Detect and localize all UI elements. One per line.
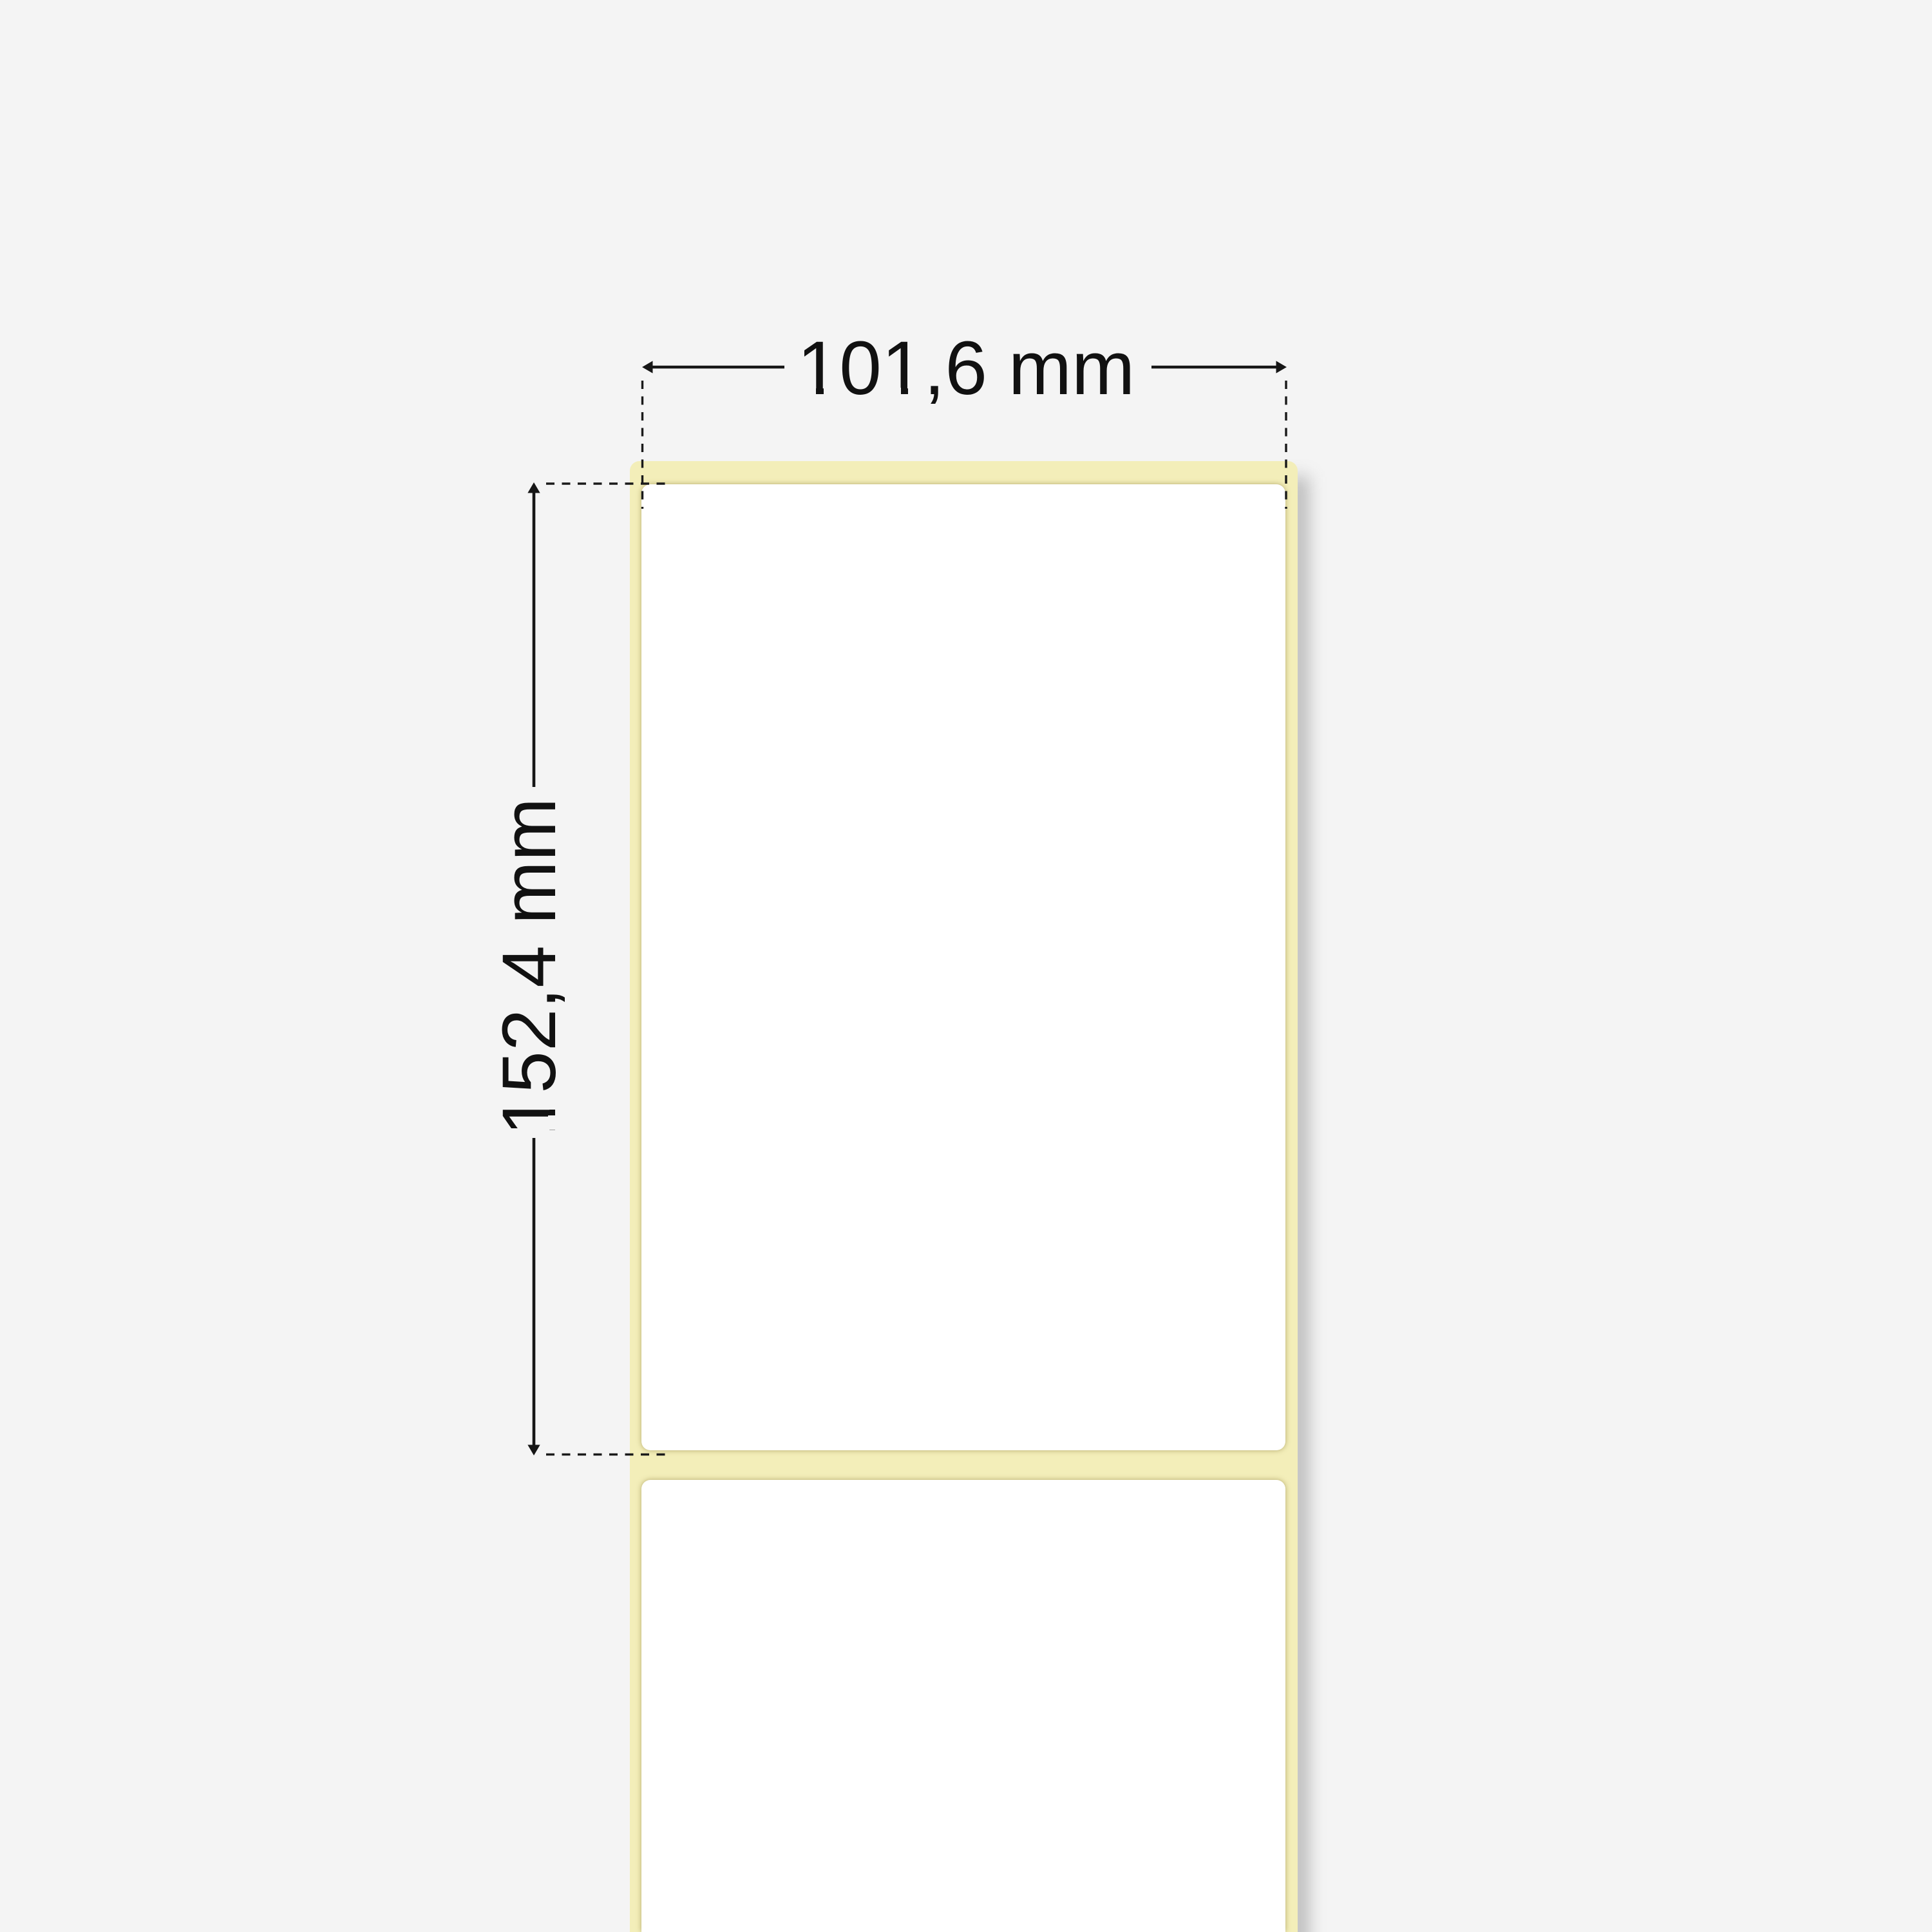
- svg-text:152,4 mm: 152,4 mm: [487, 798, 572, 1136]
- svg-text:101,6 mm: 101,6 mm: [797, 326, 1135, 411]
